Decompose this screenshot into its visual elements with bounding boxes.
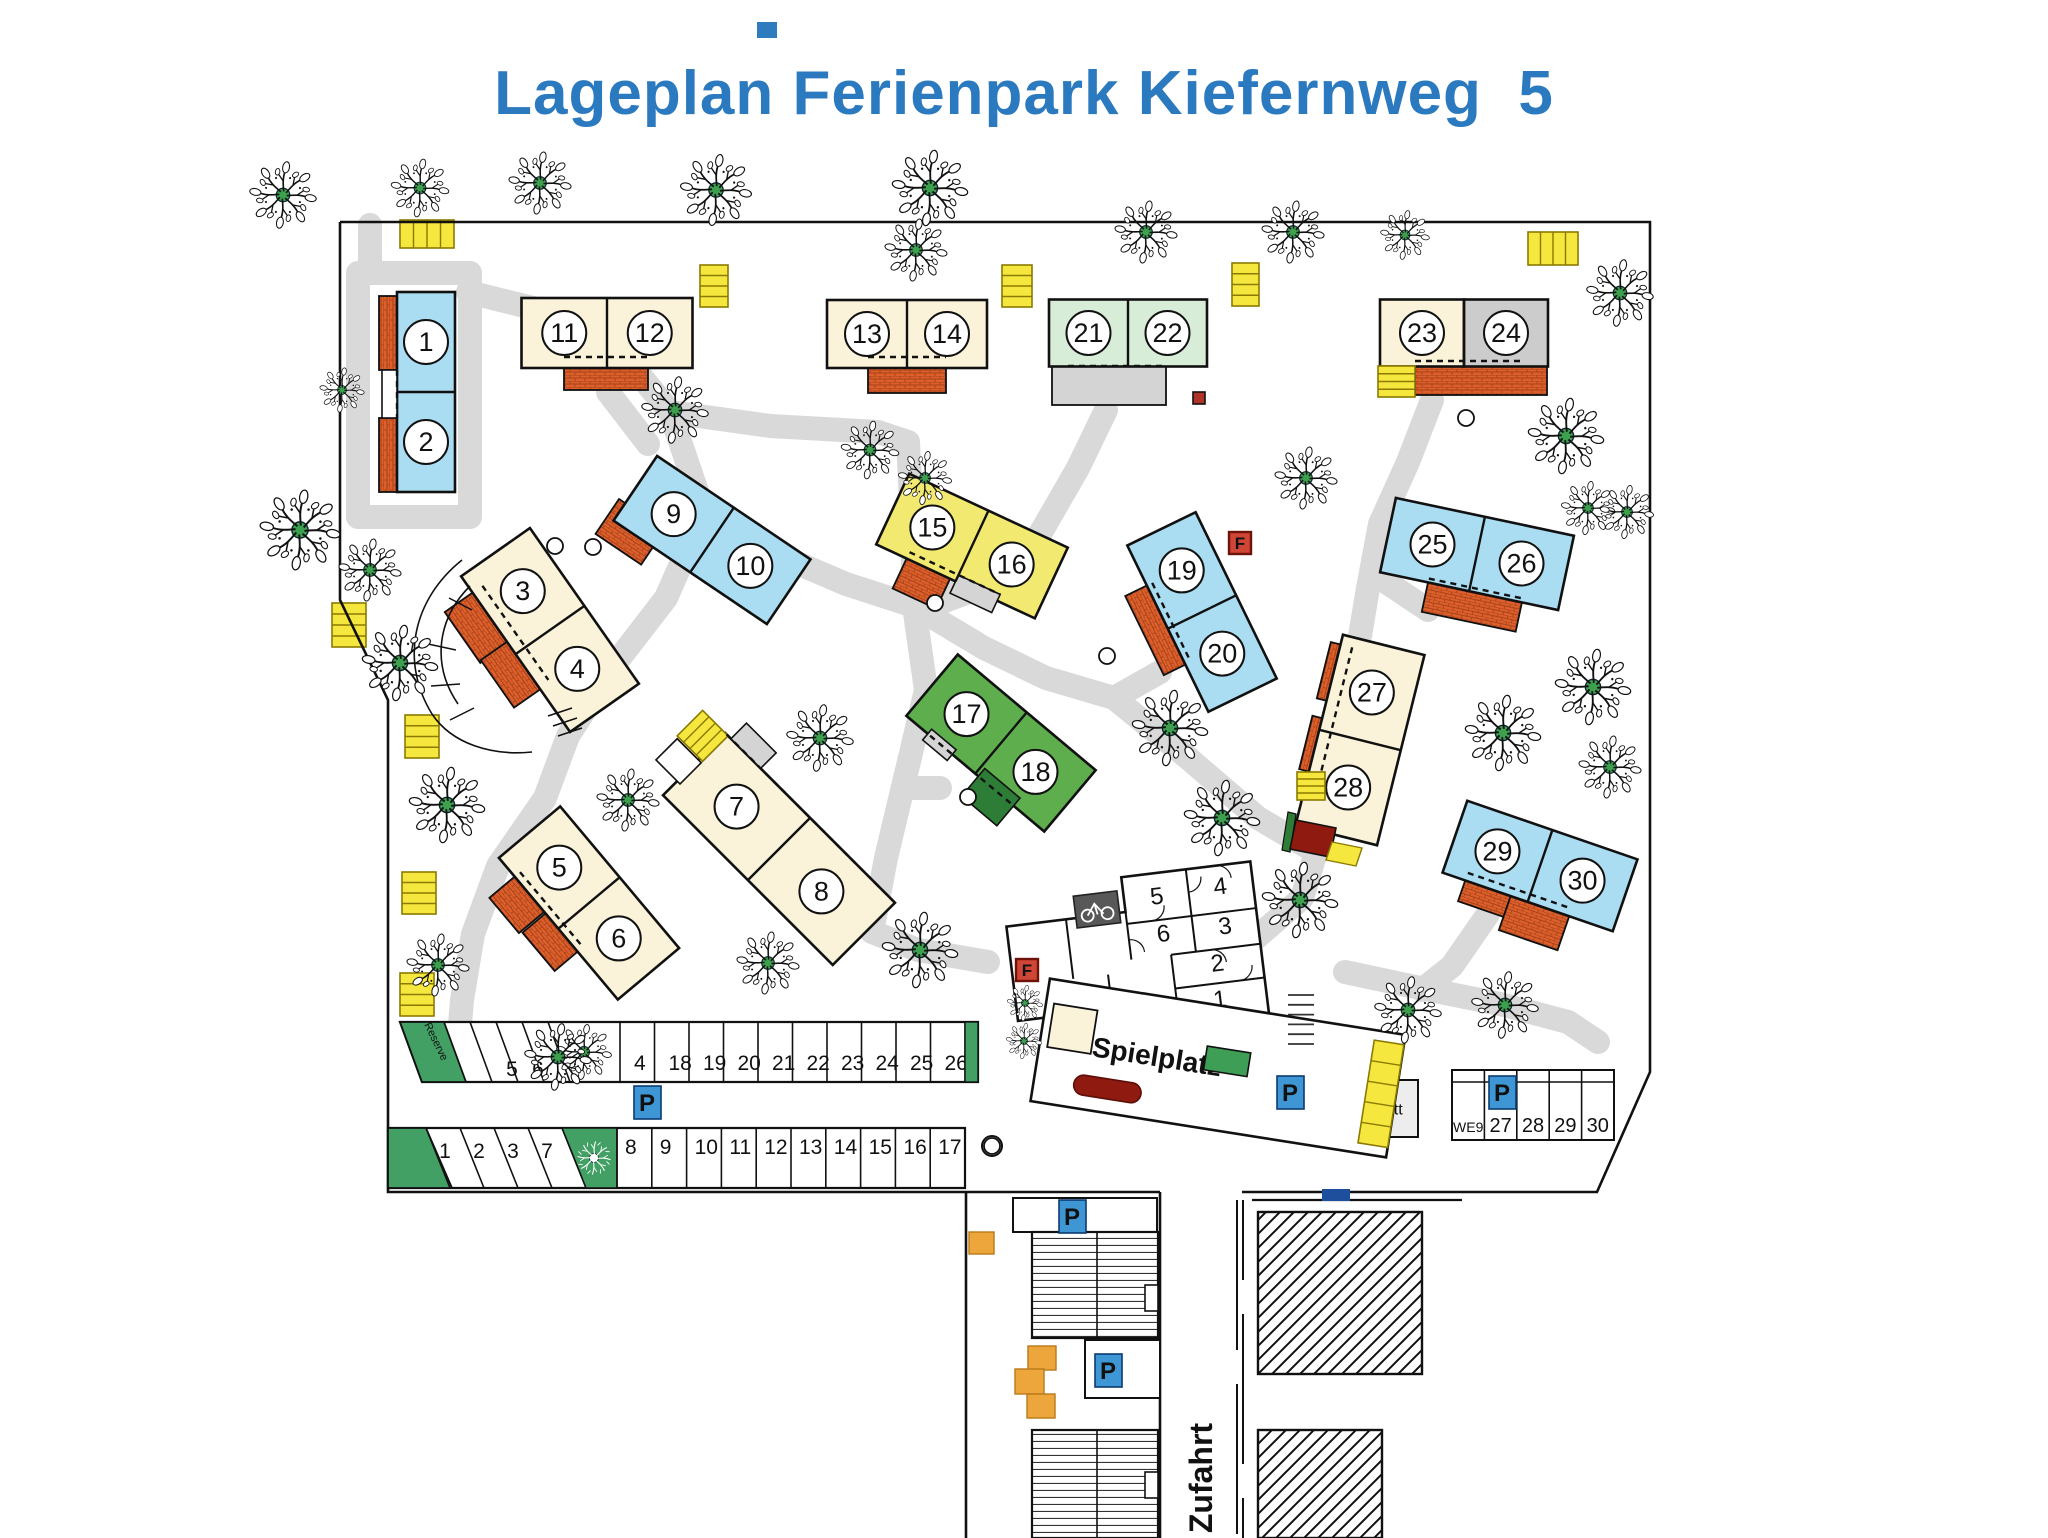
shed-box [969, 1232, 994, 1254]
unit-22-label: 22 [1146, 311, 1190, 355]
well-marker [984, 1138, 1000, 1154]
unit-7-label: 7 [715, 785, 759, 829]
parking-space-11: 11 [729, 1136, 751, 1159]
svg-text:P: P [639, 1090, 655, 1117]
carport-block [1378, 366, 1415, 397]
unit-23-label: 23 [1400, 311, 1444, 355]
site-plan-map: 546321Reserve564181920212223242526123789… [0, 0, 2048, 1538]
tree-icon [1577, 734, 1642, 799]
svg-text:19: 19 [1167, 555, 1197, 585]
parking-space-30: 30 [1587, 1115, 1609, 1137]
unit-30-label: 30 [1561, 859, 1605, 903]
well-marker [960, 789, 976, 805]
carport-block [1232, 263, 1259, 306]
unit-27-label: 27 [1350, 670, 1394, 714]
svg-text:18: 18 [1020, 757, 1050, 787]
svg-text:28: 28 [1333, 773, 1363, 803]
parking-space-7: 7 [541, 1140, 553, 1163]
tree-icon [1463, 693, 1542, 772]
carport-block [700, 265, 728, 307]
parking-space-10: 10 [695, 1136, 718, 1159]
well-marker [585, 539, 601, 555]
parking-space-19: 19 [703, 1052, 726, 1075]
parking-sign: P [1277, 1076, 1304, 1109]
parking-space-29: 29 [1554, 1115, 1576, 1137]
tree-icon [890, 148, 969, 227]
unit-25-label: 25 [1410, 523, 1454, 567]
building-21-22 [1049, 300, 1207, 406]
parking-sign: P [1059, 1200, 1086, 1233]
carport-block [1002, 265, 1032, 307]
parking-space-14: 14 [834, 1136, 858, 1159]
shed-box [1027, 1394, 1055, 1418]
unit-9-label: 9 [652, 492, 696, 536]
parking-sign: P [1489, 1076, 1516, 1109]
carport-block [1528, 232, 1578, 265]
unit-20-label: 20 [1200, 632, 1244, 676]
unit-2-label: 2 [404, 420, 448, 464]
parking-space-2: 2 [473, 1140, 485, 1163]
well-marker [1458, 410, 1474, 426]
building-15-16 [862, 474, 1068, 649]
unit-4-label: 4 [555, 647, 599, 691]
parking-space-8: 8 [625, 1136, 637, 1159]
unit-28-label: 28 [1326, 766, 1370, 810]
tree-icon [248, 160, 318, 230]
svg-text:P: P [1100, 1358, 1116, 1385]
zufahrt-label: Zufahrt [1183, 1423, 1219, 1534]
playground-annex [1047, 1004, 1097, 1054]
playground: Spielplatz [1031, 979, 1406, 1158]
unit-14-label: 14 [925, 312, 969, 356]
parking-space-23: 23 [841, 1052, 864, 1075]
terrace [1415, 366, 1547, 395]
svg-text:12: 12 [635, 318, 665, 348]
unit-3-label: 3 [501, 569, 545, 613]
unit-26-label: 26 [1500, 541, 1544, 585]
parking-space-WE9: WE9 [1453, 1119, 1484, 1135]
parking-sign: P [634, 1086, 661, 1119]
tree-icon [360, 623, 439, 702]
tree-icon [1113, 199, 1178, 264]
svg-text:P: P [1282, 1080, 1298, 1107]
unit-15-label: 15 [910, 506, 954, 550]
well-marker [547, 538, 563, 554]
footpath [872, 606, 926, 932]
well-marker [927, 595, 943, 611]
svg-text:F: F [1022, 961, 1032, 980]
svg-text:29: 29 [1482, 836, 1512, 866]
tree-icon [1182, 778, 1261, 857]
parking-space-28: 28 [1522, 1115, 1544, 1137]
neighbour-building [1258, 1212, 1422, 1374]
svg-text:16: 16 [997, 549, 1027, 579]
svg-text:21: 21 [1073, 318, 1103, 348]
tree-icon [1553, 647, 1632, 726]
unit-12-label: 12 [628, 311, 672, 355]
tree-icon [595, 767, 660, 832]
unit-8-label: 8 [799, 869, 843, 913]
svg-text:15: 15 [917, 513, 947, 543]
parking-space-25: 25 [910, 1052, 933, 1075]
unit-16-label: 16 [990, 542, 1034, 586]
hydrant-marker: F [1016, 959, 1038, 981]
access-road: Zufahrt [1183, 1189, 1462, 1538]
unit-6-label: 6 [597, 916, 641, 960]
site-plan-page: Lageplan Ferienpark Kiefernweg 5 546321R… [0, 0, 2048, 1538]
parking-sign: P [1095, 1354, 1122, 1387]
steps [1326, 842, 1362, 866]
garage-building [1032, 1232, 1158, 1338]
carport-block [332, 603, 366, 647]
tree-icon [337, 537, 402, 602]
bike-shelter [1073, 891, 1121, 928]
parking-space-12: 12 [764, 1136, 787, 1159]
well-marker [1099, 648, 1115, 664]
unit-24-label: 24 [1484, 311, 1528, 355]
tree-icon [1526, 396, 1605, 475]
svg-text:30: 30 [1568, 866, 1598, 896]
svg-text:24: 24 [1491, 318, 1521, 348]
carport-block [400, 220, 454, 248]
footpath [1422, 914, 1488, 990]
tree-icon [1585, 258, 1655, 328]
svg-text:4: 4 [570, 654, 585, 684]
shed-box [1015, 1369, 1044, 1394]
tree-icon [1273, 445, 1338, 510]
parking-space-20: 20 [738, 1052, 761, 1075]
unit-18-label: 18 [1013, 750, 1057, 794]
tree-icon [785, 703, 855, 773]
tree-icon [1260, 199, 1325, 264]
scan-mark [757, 22, 777, 38]
svg-text:5: 5 [552, 853, 567, 883]
parking-space-16: 16 [903, 1136, 926, 1159]
carport-block [405, 715, 439, 758]
building-3-4 [433, 528, 639, 751]
tree-icon [735, 930, 800, 995]
parking-space-4: 4 [634, 1052, 646, 1075]
terrace [379, 296, 397, 370]
svg-text:14: 14 [932, 319, 962, 349]
tree-icon [883, 217, 948, 282]
svg-text:20: 20 [1207, 639, 1237, 669]
tree-icon [507, 150, 572, 215]
unit-5-label: 5 [537, 846, 581, 890]
footpath [608, 392, 648, 444]
tree-icon [1379, 209, 1430, 260]
yellow-annex [1297, 772, 1325, 800]
parking-space-13: 13 [799, 1136, 822, 1159]
tree-icon [679, 153, 754, 228]
unit-19-label: 19 [1160, 548, 1204, 592]
tree-icon [258, 488, 342, 572]
svg-text:P: P [1494, 1080, 1510, 1107]
carport-block [402, 872, 436, 914]
green-strip [965, 1022, 978, 1082]
hydrant-marker: F [1229, 532, 1251, 554]
svg-text:9: 9 [666, 499, 681, 529]
svg-text:8: 8 [814, 876, 829, 906]
svg-text:26: 26 [1506, 548, 1536, 578]
garage-section [969, 1198, 1160, 1538]
tree-icon [1470, 970, 1540, 1040]
parking-space-5: 5 [506, 1058, 518, 1081]
road-marker [1322, 1189, 1350, 1201]
svg-text:17: 17 [952, 699, 982, 729]
svg-text:25: 25 [1417, 530, 1447, 560]
tree-icon [880, 910, 959, 989]
svg-text:6: 6 [611, 923, 626, 953]
garage-building [1032, 1430, 1158, 1538]
neighbour-building [1258, 1430, 1382, 1538]
unit-21-label: 21 [1067, 311, 1111, 355]
parking-space-9: 9 [660, 1136, 672, 1159]
parking-lot-main: Reserve564181920212223242526123789101112… [388, 1021, 1002, 1188]
unit-17-label: 17 [945, 692, 989, 736]
shed-box [1028, 1346, 1056, 1370]
svg-text:10: 10 [735, 551, 765, 581]
svg-text:7: 7 [729, 792, 744, 822]
unit-29-label: 29 [1475, 829, 1519, 873]
unit-10-label: 10 [728, 544, 772, 588]
parking-space-22: 22 [807, 1052, 830, 1075]
svg-text:2: 2 [418, 427, 433, 457]
svg-text:27: 27 [1357, 677, 1387, 707]
svg-text:22: 22 [1152, 318, 1182, 348]
unit-13-label: 13 [845, 312, 889, 356]
parking-space-15: 15 [869, 1136, 892, 1159]
parking-space-3: 3 [507, 1140, 519, 1163]
svg-text:13: 13 [852, 319, 882, 349]
svg-text:P: P [1064, 1204, 1080, 1231]
parking-space-27: 27 [1489, 1115, 1511, 1137]
parking-space-24: 24 [876, 1052, 900, 1075]
tree-icon [407, 765, 486, 844]
building-27-28 [1286, 632, 1425, 845]
svg-text:11: 11 [550, 318, 578, 348]
unit-11-label: 11 [542, 311, 586, 355]
terrace [1052, 366, 1166, 405]
svg-text:1: 1 [418, 327, 433, 357]
parking-space-21: 21 [772, 1052, 795, 1075]
svg-text:3: 3 [515, 576, 530, 606]
svg-text:F: F [1235, 534, 1245, 553]
unit-1-label: 1 [404, 320, 448, 364]
terrace [379, 418, 397, 492]
building-7-8 [640, 695, 910, 965]
parking-space-17: 17 [938, 1136, 961, 1159]
tree-icon [390, 158, 451, 219]
parking-space-18: 18 [669, 1052, 692, 1075]
svg-text:23: 23 [1407, 318, 1437, 348]
parking-space-1: 1 [439, 1140, 451, 1163]
